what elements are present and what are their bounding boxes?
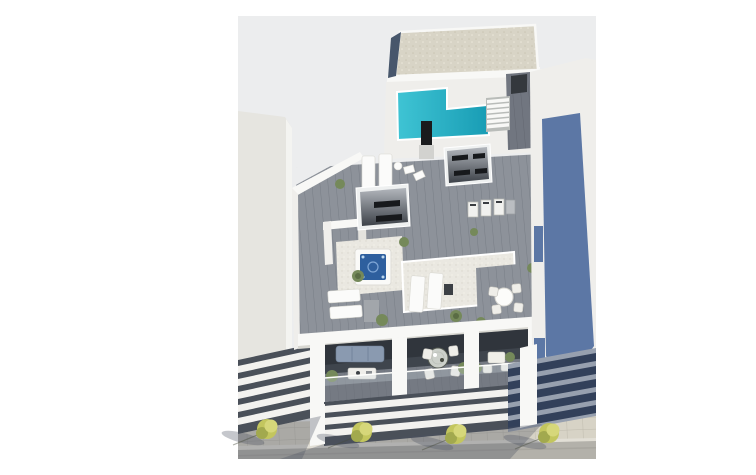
chair	[513, 303, 523, 313]
chair	[512, 283, 522, 293]
penthouse-floor	[292, 144, 544, 350]
table-decor	[356, 371, 360, 375]
pool-shower	[421, 121, 432, 147]
tree-canopy-light	[265, 420, 278, 433]
skylight-vent	[475, 168, 487, 174]
potted-plant	[399, 237, 409, 247]
potted-plant	[376, 314, 388, 326]
appliance-cabinet	[506, 200, 515, 214]
center-skylight	[356, 184, 410, 230]
pier	[392, 337, 407, 398]
side-table-dark	[444, 284, 453, 295]
sun-lounger	[409, 276, 425, 313]
side-table	[394, 162, 402, 170]
architectural-render	[40, 16, 756, 459]
sun-lounger	[330, 305, 363, 319]
appliance-panel	[470, 204, 476, 206]
potted-plant	[335, 179, 345, 189]
right-skylight	[444, 144, 492, 186]
balcony-sofa	[336, 346, 384, 362]
right-corner-pier	[520, 344, 537, 428]
pier	[464, 331, 479, 392]
potted-plant	[470, 228, 478, 236]
tree-canopy-light	[360, 423, 373, 436]
table-item	[433, 353, 437, 357]
left-building-face	[238, 111, 292, 360]
pier	[310, 343, 325, 408]
sun-lounger	[427, 273, 443, 310]
jacuzzi-courtyard	[336, 236, 404, 296]
sun-lounger	[362, 156, 375, 189]
pool-terrace	[384, 69, 544, 159]
stair-doorway	[511, 74, 527, 94]
tree-canopy-light	[547, 424, 560, 437]
sun-lounger	[328, 289, 361, 303]
table-item	[440, 358, 444, 362]
hot-tub-jet	[382, 276, 385, 279]
skylight-glass	[447, 147, 489, 183]
chair	[488, 286, 498, 296]
sun-lounger	[379, 154, 392, 187]
chair	[491, 304, 501, 314]
skylight-vent	[473, 153, 485, 159]
bistro-table	[488, 352, 505, 363]
hot-tub-jet	[382, 256, 385, 259]
plant-core	[453, 313, 459, 319]
appliance-panel	[496, 201, 502, 203]
exterior-staircase	[486, 96, 510, 132]
potted-plant	[505, 352, 515, 362]
chair	[448, 345, 458, 356]
chair	[422, 348, 433, 359]
hot-tub-jet	[362, 256, 365, 259]
gravel-texture	[395, 25, 538, 76]
plant-core	[355, 273, 361, 279]
appliance-panel	[483, 202, 489, 204]
pool-shower-base	[419, 145, 434, 159]
slate-wall-wing	[534, 226, 543, 262]
render-canvas	[40, 16, 756, 459]
tree-canopy-light	[454, 425, 467, 438]
left-building-corner	[286, 119, 292, 360]
